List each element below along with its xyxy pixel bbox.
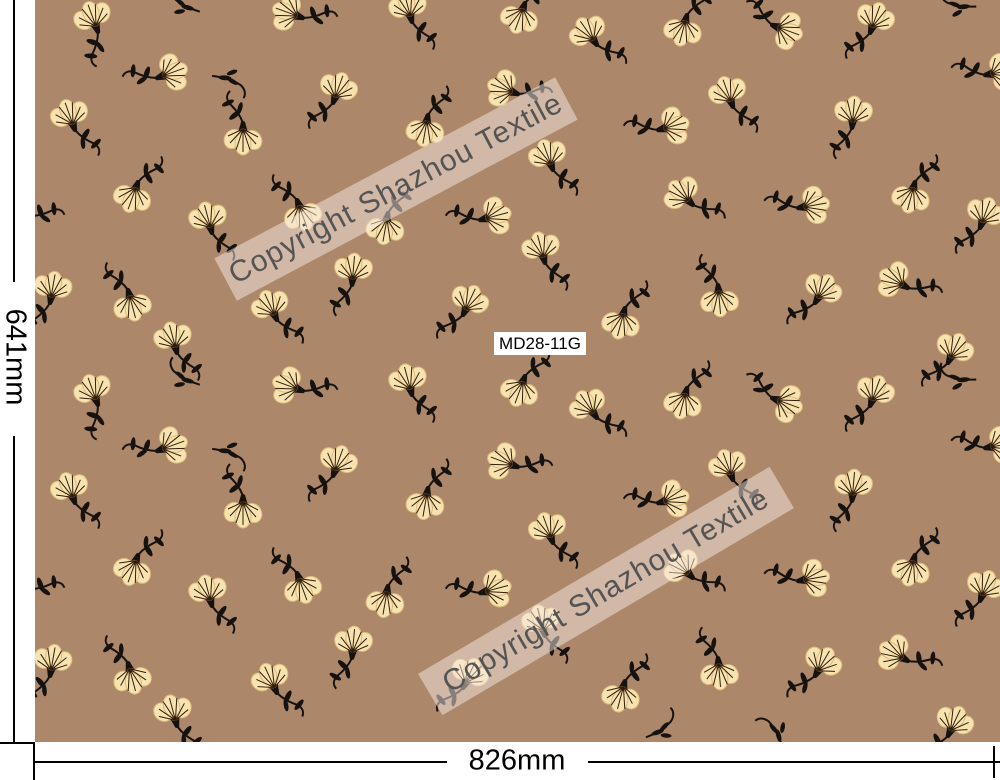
stem-motif	[165, 0, 200, 20]
flower-motif	[885, 518, 945, 591]
flower-motif	[621, 100, 694, 160]
flower-motif	[560, 379, 633, 457]
flower-motif	[560, 6, 633, 84]
flower-motif	[734, 0, 809, 57]
flower-motif	[657, 351, 717, 424]
flower-motif	[35, 268, 78, 339]
flower-motif	[221, 464, 266, 528]
flower-motif	[327, 624, 377, 692]
flower-motif	[693, 251, 743, 319]
height-dimension-label: 641mm	[0, 309, 32, 406]
flower-motif	[243, 282, 311, 359]
flower-motif	[780, 637, 851, 715]
flower-motif	[43, 92, 107, 167]
fabric-swatch: Copyright Shazhou Textile Copyright Shaz…	[35, 0, 1000, 742]
flower-motif	[301, 65, 365, 140]
flower-motif	[763, 180, 834, 235]
flower-motif	[119, 419, 194, 483]
flower-motif	[914, 325, 982, 402]
flower-motif	[265, 0, 340, 50]
flower-motif	[66, 0, 130, 70]
height-dimension-line-upper	[13, 0, 15, 282]
design-code-label: MD28-11G	[494, 332, 586, 355]
flower-motif	[400, 453, 455, 524]
flower-motif	[147, 689, 207, 742]
flower-motif	[780, 264, 851, 342]
flower-motif	[265, 535, 329, 610]
flower-motif	[914, 698, 982, 742]
flower-motif	[265, 359, 340, 423]
flower-motif	[734, 366, 809, 430]
flower-motif	[701, 69, 765, 144]
flower-motif	[595, 271, 655, 344]
flower-motif	[119, 46, 194, 110]
flower-motif	[763, 553, 834, 608]
width-dimension-start-tick	[33, 742, 35, 780]
stem-motif	[935, 0, 976, 22]
stem-motif	[750, 713, 791, 742]
fabric-design-preview: Copyright Shazhou Textile Copyright Shaz…	[0, 0, 1000, 780]
height-dimension-end-tick	[0, 742, 35, 744]
flower-motif	[838, 368, 902, 443]
flower-motif	[382, 0, 442, 59]
width-dimension-line-right	[588, 761, 1000, 763]
flower-motif	[595, 644, 655, 717]
flower-motif	[655, 167, 732, 244]
flower-motif	[382, 358, 442, 431]
flower-motif	[885, 145, 945, 218]
flower-motif	[301, 438, 365, 513]
flower-motif	[98, 626, 158, 699]
flower-motif	[950, 47, 1000, 102]
width-dimension-end-tick	[993, 746, 995, 778]
flower-motif	[443, 190, 516, 250]
flower-motif	[827, 467, 877, 535]
flower-motif	[43, 465, 107, 540]
flower-motif	[838, 0, 902, 71]
flower-motif	[327, 251, 377, 319]
flower-motif	[243, 655, 311, 732]
height-dimension-line-lower	[13, 436, 15, 743]
flower-motif	[35, 184, 68, 248]
flower-motif	[948, 190, 1000, 265]
flower-motif	[98, 253, 158, 326]
flower-motif	[35, 557, 68, 621]
flower-motif	[869, 626, 947, 697]
flower-motif	[182, 569, 242, 642]
stem-motif	[646, 704, 679, 742]
width-dimension-line-left	[33, 761, 447, 763]
flower-motif	[66, 367, 130, 442]
width-dimension-label: 826mm	[469, 745, 566, 778]
flower-motif	[106, 144, 170, 219]
flower-motif	[429, 277, 497, 354]
flower-motif	[515, 226, 575, 299]
flower-motif	[35, 641, 78, 712]
flower-motif	[360, 551, 415, 622]
flower-motif	[869, 253, 947, 324]
flower-motif	[221, 91, 266, 155]
flower-motif	[657, 0, 717, 52]
flower-motif	[950, 420, 1000, 475]
flower-motif	[493, 0, 557, 41]
flower-motif	[948, 563, 1000, 638]
flower-motif	[480, 435, 555, 499]
flower-motif	[521, 505, 585, 580]
flower-motif	[693, 624, 743, 692]
flower-motif	[147, 316, 207, 389]
flower-motif	[443, 563, 516, 623]
flower-motif	[827, 94, 877, 162]
flower-motif	[106, 517, 170, 592]
